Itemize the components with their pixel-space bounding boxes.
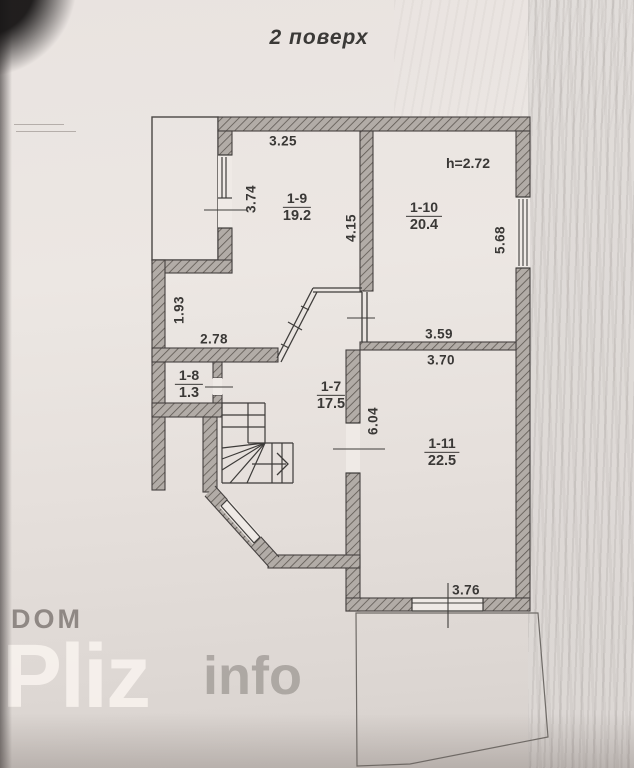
room-label-1-8: 1-8 1.3 — [175, 368, 203, 402]
page-title: 2 поверх — [270, 26, 369, 50]
room-id: 1-7 — [317, 379, 345, 396]
room-area: 1.3 — [179, 386, 199, 402]
room-label-1-9: 1-9 19.2 — [283, 191, 311, 225]
balcony-outline — [152, 117, 218, 260]
dim-1-11-bottom: 3.76 — [452, 583, 480, 598]
ceiling-height-note: h=2.72 — [446, 155, 490, 171]
room-label-1-10: 1-10 20.4 — [406, 200, 442, 234]
dim-1-9-top: 3.25 — [269, 134, 297, 149]
window-left-1-9 — [218, 155, 232, 228]
watermark-dom: DOM — [11, 604, 83, 635]
dim-1-10-right: 5.68 — [493, 226, 508, 254]
watermark-info: info — [203, 645, 302, 707]
room-label-1-11: 1-11 22.5 — [424, 436, 459, 470]
room-area: 22.5 — [428, 454, 456, 470]
room-label-1-7: 1-7 17.5 — [317, 379, 345, 413]
room-id: 1-11 — [424, 436, 459, 453]
opening-1-11-left — [346, 423, 360, 473]
window-right-1-10 — [516, 197, 530, 268]
dim-hall-left: 2.78 — [200, 332, 228, 347]
watermark-pliz: Pliz — [2, 626, 149, 729]
lower-structure-outline — [356, 613, 548, 766]
room-id: 1-9 — [283, 191, 311, 208]
scanned-floorplan-photo: 2 поверх 3.25 3.74 4.15 5.68 1.93 2.78 3… — [0, 0, 634, 768]
dim-mid-vertical: 4.15 — [344, 214, 359, 242]
dim-1-9-left: 3.74 — [244, 185, 259, 213]
room-id: 1-8 — [175, 368, 203, 385]
staircase — [222, 403, 293, 483]
room-area: 20.4 — [410, 218, 438, 234]
dim-1-11-left: 6.04 — [366, 407, 381, 435]
walls — [152, 117, 530, 611]
room-id: 1-10 — [406, 200, 442, 217]
dim-1-11-top: 3.70 — [427, 353, 455, 368]
room-area: 17.5 — [317, 397, 345, 413]
room-area: 19.2 — [283, 209, 311, 225]
dim-step-left: 1.93 — [172, 296, 187, 324]
dim-1-11-above: 3.59 — [425, 327, 453, 342]
diagonal-wall — [205, 486, 279, 567]
